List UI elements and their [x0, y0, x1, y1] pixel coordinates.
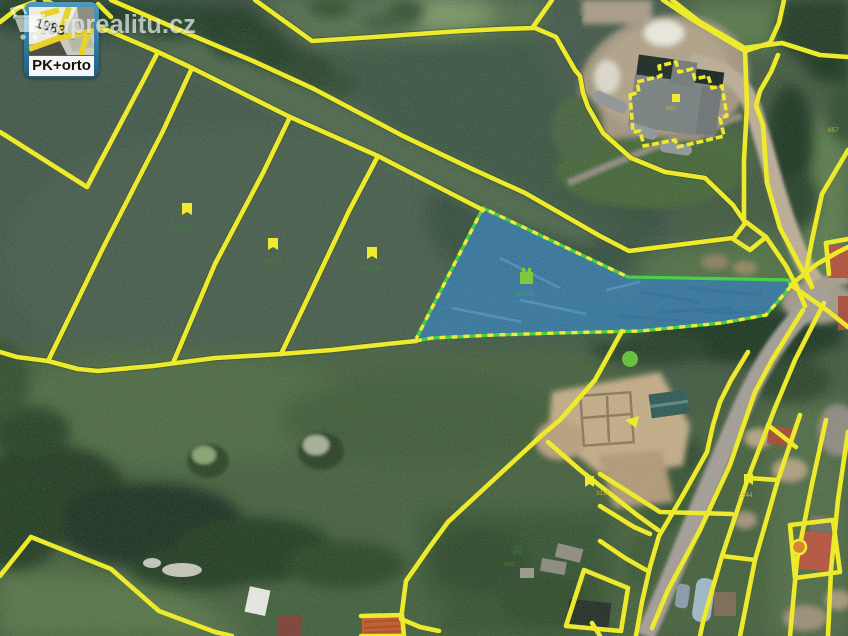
- svg-text:kuprealitu.cz: kuprealitu.cz: [40, 11, 196, 39]
